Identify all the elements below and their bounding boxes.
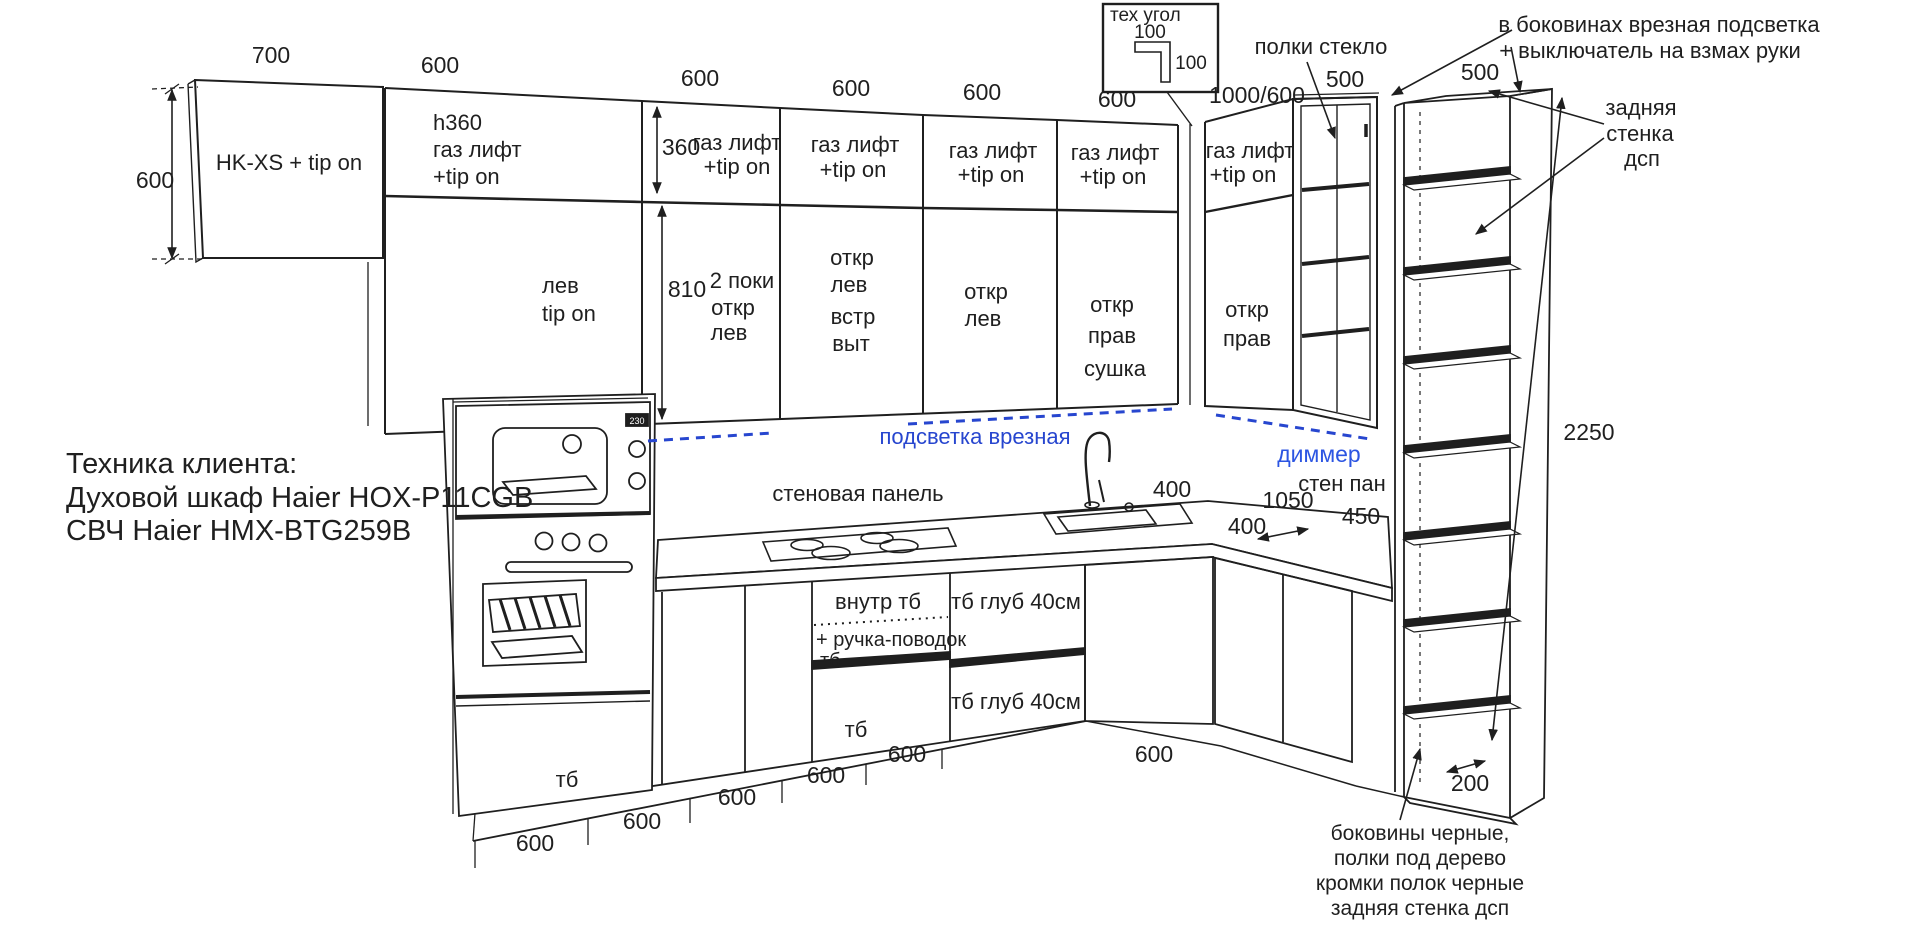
wall-run-divider <box>385 196 1178 212</box>
cab-b-bot-2: откр <box>711 295 755 320</box>
cab-c-bot-4: выт <box>832 331 870 356</box>
cab-e-bot-1: откр <box>1090 292 1134 317</box>
dim-bottom-5: 600 <box>888 741 926 767</box>
dim-top-1: 600 <box>421 52 459 78</box>
cab-f-top-1: газ лифт <box>1206 138 1295 163</box>
dim-top-3: 600 <box>832 75 870 101</box>
back-wall-label-2: стенка <box>1606 121 1674 146</box>
shelf-bottom <box>1404 797 1516 824</box>
dim-corner: 1000/600 <box>1209 82 1305 108</box>
tech-corner-leader <box>1167 92 1192 126</box>
dim-1050: 1050 <box>1262 487 1313 513</box>
drawer-gap <box>950 648 1085 667</box>
back-wall-label-1: задняя <box>1605 95 1676 120</box>
wall-panel-label: стеновая панель <box>772 481 943 506</box>
kitchen-drawing-svg: Техника клиента: Духовой шкаф Haier HOX-… <box>0 0 1920 940</box>
cab-e-bot-2: прав <box>1088 323 1136 348</box>
base-handle-1: + ручка-поводок <box>816 629 966 651</box>
tall-shelf-unit <box>1395 89 1552 824</box>
cab-a-tipon: +tip on <box>433 164 500 189</box>
dim-glass: 500 <box>1326 66 1364 92</box>
cab-f-bot-1: откр <box>1225 297 1269 322</box>
dim-bottom-right: 600 <box>1135 741 1173 767</box>
cab-c-bot-3: встр <box>831 304 876 329</box>
dim-bottom-3: 600 <box>718 784 756 810</box>
footer-line-4: задняя стенка дсп <box>1331 897 1509 920</box>
glass-cabinet <box>1293 93 1379 428</box>
dim-top-5: 600 <box>1098 86 1136 112</box>
dim-200-label: 200 <box>1451 770 1489 796</box>
cab-a-bot-1: лев <box>542 273 579 298</box>
microwave-display-value: 230 <box>629 416 644 426</box>
cab-a-h360: h360 <box>433 110 482 135</box>
back-wall-label-3: дсп <box>1624 146 1660 171</box>
cab-a-bot-2: tip on <box>542 301 596 326</box>
dim-hk-width: 700 <box>252 42 290 68</box>
dim-top-2: 600 <box>681 65 719 91</box>
dim-450: 450 <box>1342 503 1380 529</box>
footer-line-2: полки под дерево <box>1334 847 1506 870</box>
footer-line-3: кромки полок черные <box>1316 872 1524 895</box>
strip-light-label: подсветка врезная <box>879 424 1070 449</box>
base-depth-1: тб глуб 40см <box>951 589 1081 614</box>
dimmer-label: диммер <box>1277 441 1360 467</box>
client-info-microwave: СВЧ Haier HMX-BTG259B <box>66 515 411 547</box>
tech-corner-shape <box>1135 42 1170 82</box>
oven-column <box>443 394 655 816</box>
base-handle-2: тб <box>820 650 841 672</box>
kitchen-drawing: Техника клиента: Духовой шкаф Haier HOX-… <box>0 0 1920 940</box>
cab-b-bot-3: лев <box>711 320 748 345</box>
dim-top-4: 600 <box>963 79 1001 105</box>
cab-c-top-2: +tip on <box>820 157 887 182</box>
cab-f-top-2: +tip on <box>1210 162 1277 187</box>
base-tb-oven: тб <box>556 767 579 792</box>
faucet-lever <box>1099 480 1104 502</box>
cab-d-bot-2: лев <box>965 306 1002 331</box>
wall-run-top-edge <box>385 88 1178 125</box>
base-inner-tb: внутр тб <box>835 589 921 614</box>
cab-a-gaslift: газ лифт <box>433 137 522 162</box>
cab-e-bot-3: сушка <box>1084 356 1147 381</box>
client-info-title: Техника клиента: <box>66 448 297 480</box>
tech-corner-dim-top: 100 <box>1134 22 1166 43</box>
glass-shelves-label: полки стекло <box>1255 34 1388 59</box>
dim-bottom-2: 600 <box>623 808 661 834</box>
shelf-left-side <box>1395 103 1404 797</box>
cab-c-bot-1: откр <box>830 245 874 270</box>
cab-d-top-1: газ лифт <box>949 138 1038 163</box>
dim-bottom-4: 600 <box>807 762 845 788</box>
cab-d-bot-1: откр <box>964 279 1008 304</box>
cab-b-bot-1: 2 поки <box>710 268 774 293</box>
dim-row-bottom: 810 <box>668 276 706 302</box>
inner-drawer-dotted <box>814 617 948 625</box>
cab-d-top-2: +tip on <box>958 162 1025 187</box>
base-depth-2: тб глуб 40см <box>951 689 1081 714</box>
base-tb-mid: тб <box>845 717 868 742</box>
glass-shelves <box>1302 184 1369 336</box>
dim-hk-height: 600 <box>136 167 174 193</box>
side-light-label-1: в боковинах врезная подсветка <box>1498 12 1820 37</box>
side-light-label-2: + выключатель на взмах руки <box>1499 38 1801 63</box>
cab-e-top-1: газ лифт <box>1071 140 1160 165</box>
cab-c-top-1: газ лифт <box>811 132 900 157</box>
cab-b-top-2: +tip on <box>704 154 771 179</box>
cab-b-top-1: газ лифт <box>693 130 782 155</box>
cab-c-bot-2: лев <box>831 272 868 297</box>
dim-sink-400: 400 <box>1153 476 1191 502</box>
dim-shelf-width: 500 <box>1461 59 1499 85</box>
dim-bottom-1: 600 <box>516 830 554 856</box>
dim-2250-label: 2250 <box>1563 419 1614 445</box>
dim-400-right: 400 <box>1228 513 1266 539</box>
footer-arrow <box>1400 749 1420 820</box>
tech-corner-dim-side: 100 <box>1175 53 1207 74</box>
footer-line-1: боковины черные, <box>1331 822 1510 845</box>
corner-base <box>1085 557 1213 724</box>
cab-f-bot-2: прав <box>1223 326 1271 351</box>
hkxs-label: HK-XS + tip on <box>216 150 362 175</box>
client-info-oven: Духовой шкаф Haier HOX-P11CGB <box>66 482 533 514</box>
cab-e-top-2: +tip on <box>1080 164 1147 189</box>
faucet <box>1086 433 1110 506</box>
